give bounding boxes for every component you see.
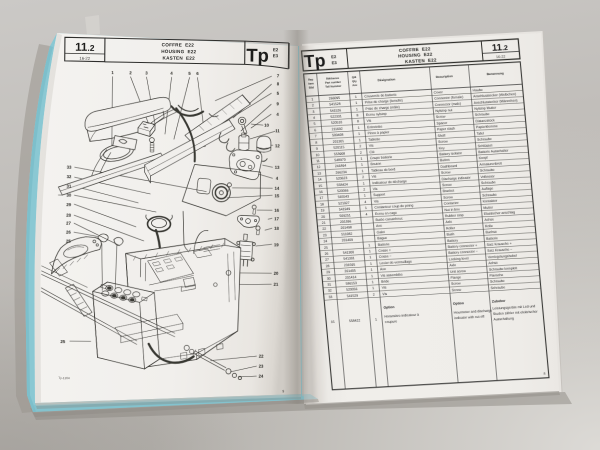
svg-text:Axle: Axle	[445, 220, 452, 224]
svg-text:E3: E3	[273, 53, 279, 58]
svg-text:201409: 201409	[341, 238, 353, 243]
svg-text:31: 31	[66, 184, 71, 189]
svg-text:Screw: Screw	[438, 139, 448, 144]
svg-text:23: 23	[259, 364, 264, 369]
svg-text:520066: 520066	[337, 188, 349, 193]
svg-text:15: 15	[274, 193, 279, 198]
svg-text:18: 18	[320, 202, 324, 206]
svg-text:Vis: Vis	[373, 187, 378, 191]
svg-text:522331: 522331	[330, 114, 342, 119]
svg-text:Clé: Clé	[369, 150, 375, 154]
svg-text:25: 25	[60, 339, 65, 344]
svg-text:29: 29	[326, 270, 330, 274]
svg-text:Screw: Screw	[452, 288, 462, 293]
svg-text:13: 13	[317, 171, 321, 175]
svg-text:Bracket: Bracket	[443, 189, 455, 194]
svg-text:Bush: Bush	[446, 232, 454, 236]
svg-text:KASTEN E22: KASTEN E22	[163, 56, 196, 61]
svg-text:Zubehor: Zubehor	[492, 299, 507, 304]
svg-text:11: 11	[316, 159, 320, 163]
svg-text:201414: 201414	[345, 275, 357, 280]
svg-text:Ty-1104: Ty-1104	[58, 376, 70, 380]
svg-text:16-22: 16-22	[79, 56, 90, 61]
svg-text:Schraube: Schraube	[480, 168, 495, 173]
svg-text:520056: 520056	[346, 287, 358, 292]
svg-text:Shelf: Shelf	[437, 133, 445, 137]
svg-text:21: 21	[273, 282, 278, 287]
svg-text:261405: 261405	[344, 269, 356, 274]
svg-text:16: 16	[319, 190, 323, 194]
svg-text:Vis: Vis	[366, 119, 371, 123]
svg-text:Battery: Battery	[447, 238, 458, 243]
svg-text:19: 19	[274, 242, 279, 247]
svg-text:Bild: Bild	[309, 86, 315, 89]
svg-text:12: 12	[317, 165, 321, 169]
svg-text:COFFRE E22: COFFRE E22	[162, 42, 195, 47]
svg-text:541529: 541529	[347, 294, 359, 299]
svg-text:Option: Option	[383, 305, 394, 310]
svg-text:509251: 509251	[339, 213, 351, 218]
svg-text:Schraube: Schraube	[475, 112, 490, 117]
svg-text:Option: Option	[453, 301, 464, 306]
svg-text:Batterie: Batterie	[486, 236, 498, 241]
svg-text:14: 14	[318, 178, 322, 182]
svg-text:28: 28	[66, 213, 71, 218]
svg-text:22: 22	[259, 354, 264, 359]
svg-text:Vollmeter: Vollmeter	[480, 174, 495, 179]
svg-text:Achse: Achse	[488, 261, 498, 266]
svg-text:Qty: Qty	[352, 80, 357, 83]
svg-text:Knopf: Knopf	[479, 156, 488, 160]
svg-text:Roller: Roller	[446, 226, 456, 231]
svg-text:558422: 558422	[349, 319, 361, 324]
svg-text:Vis: Vis	[369, 144, 374, 148]
svg-text:548970: 548970	[334, 158, 346, 163]
svg-text:Qté: Qté	[352, 76, 357, 79]
svg-text:Axle: Axle	[449, 263, 456, 267]
svg-text:Cosse −: Cosse −	[379, 254, 392, 259]
svg-text:33: 33	[67, 165, 72, 170]
svg-text:Bouton: Bouton	[370, 162, 381, 167]
svg-text:16-22: 16-22	[496, 55, 506, 59]
svg-text:586153: 586153	[345, 281, 357, 286]
svg-text:231595: 231595	[344, 263, 356, 268]
svg-text:13: 13	[275, 165, 280, 170]
svg-text:15: 15	[318, 184, 322, 188]
svg-text:520623: 520623	[336, 176, 348, 181]
svg-text:Cosse +: Cosse +	[378, 248, 391, 253]
svg-text:32: 32	[328, 289, 332, 293]
svg-text:E2: E2	[273, 47, 279, 52]
svg-text:22: 22	[322, 227, 326, 231]
svg-text:Key: Key	[439, 146, 446, 150]
svg-text:Vis: Vis	[371, 175, 376, 179]
svg-text:565543: 565543	[338, 195, 350, 200]
svg-text:15: 15	[331, 320, 335, 324]
svg-text:11.2: 11.2	[75, 42, 95, 54]
svg-text:Support: Support	[373, 193, 385, 198]
svg-text:33: 33	[328, 295, 332, 299]
svg-text:201396: 201396	[340, 219, 352, 224]
svg-text:201301: 201301	[332, 139, 344, 144]
svg-text:Anz: Anz	[352, 84, 358, 87]
svg-text:520510: 520510	[331, 121, 343, 126]
svg-text:29: 29	[66, 202, 71, 207]
svg-text:266234: 266234	[335, 170, 347, 175]
svg-text:21: 21	[322, 221, 326, 225]
svg-text:20: 20	[321, 215, 325, 219]
svg-text:Tafel: Tafel	[476, 131, 484, 135]
svg-text:25: 25	[66, 239, 71, 244]
svg-text:Schlüssel: Schlüssel	[478, 143, 493, 148]
svg-text:31: 31	[327, 283, 331, 287]
svg-text:Button: Button	[440, 158, 450, 163]
svg-text:25: 25	[324, 246, 328, 250]
svg-text:Haube: Haube	[472, 88, 482, 93]
svg-text:Achse: Achse	[484, 218, 494, 223]
svg-text:24: 24	[259, 374, 264, 379]
svg-text:Buchse: Buchse	[485, 230, 497, 235]
svg-text:30: 30	[327, 276, 331, 280]
svg-text:541301: 541301	[343, 256, 355, 261]
svg-text:27: 27	[66, 221, 71, 226]
svg-text:Mutter: Mutter	[483, 205, 494, 210]
svg-text:18: 18	[274, 226, 279, 231]
svg-text:Rolle: Rolle	[485, 224, 493, 228]
svg-text:Schraube: Schraube	[490, 285, 505, 290]
svg-text:Schraube: Schraube	[481, 180, 496, 185]
svg-text:266095: 266095	[329, 96, 341, 101]
svg-text:Tablette: Tablette	[368, 137, 380, 142]
svg-text:541528: 541528	[329, 102, 341, 107]
svg-text:24: 24	[323, 239, 327, 243]
svg-text:Screw: Screw	[443, 195, 453, 200]
svg-text:Screw: Screw	[436, 115, 446, 120]
svg-text:11: 11	[275, 128, 280, 133]
svg-text:10: 10	[315, 153, 319, 157]
svg-text:Flansche: Flansche	[489, 273, 503, 278]
svg-text:Cover: Cover	[434, 90, 444, 95]
svg-text:201498: 201498	[340, 226, 352, 231]
svg-text:Entretoise: Entretoise	[367, 125, 383, 130]
svg-text:10: 10	[264, 123, 269, 128]
svg-text:Vis: Vis	[382, 286, 387, 290]
svg-text:541300: 541300	[343, 250, 355, 255]
svg-text:Bride: Bride	[381, 279, 389, 283]
svg-text:Screw: Screw	[442, 183, 452, 188]
svg-text:17: 17	[319, 196, 323, 200]
svg-text:Screw: Screw	[451, 282, 461, 287]
svg-text:558424: 558424	[336, 182, 348, 187]
svg-text:27: 27	[325, 258, 329, 262]
svg-text:509408: 509408	[332, 133, 344, 138]
svg-text:Vis: Vis	[382, 292, 387, 296]
svg-text:541949: 541949	[339, 207, 351, 212]
svg-text:Batterie: Batterie	[378, 242, 390, 247]
svg-text:HOUSING E22: HOUSING E22	[161, 49, 196, 54]
svg-text:Schraube: Schraube	[490, 279, 505, 284]
svg-text:Schraube: Schraube	[477, 137, 492, 142]
svg-text:511082: 511082	[341, 232, 353, 237]
svg-text:Tp: Tp	[246, 44, 269, 65]
svg-text:Galet: Galet	[377, 230, 386, 234]
svg-text:Schraube: Schraube	[482, 193, 497, 198]
svg-text:17: 17	[274, 216, 279, 221]
svg-text:520115: 520115	[333, 145, 345, 150]
svg-text:Bague: Bague	[377, 236, 387, 241]
svg-text:Axe: Axe	[376, 224, 382, 228]
svg-text:541526: 541526	[330, 108, 342, 113]
svg-text:Vis: Vis	[374, 199, 379, 203]
svg-text:28: 28	[326, 264, 330, 268]
svg-text:Spacer: Spacer	[436, 121, 448, 126]
svg-text:Axe: Axe	[380, 267, 386, 271]
svg-text:16: 16	[274, 208, 279, 213]
svg-text:coupure: coupure	[385, 320, 398, 325]
svg-text:20: 20	[274, 271, 279, 276]
svg-text:211692: 211692	[331, 127, 343, 132]
svg-text:30: 30	[66, 193, 71, 198]
svg-text:Auflage: Auflage	[481, 187, 493, 192]
svg-text:12: 12	[275, 143, 280, 148]
svg-text:32: 32	[67, 174, 72, 179]
svg-text:241894: 241894	[335, 164, 347, 169]
svg-text:26: 26	[66, 230, 71, 235]
svg-text:553908: 553908	[334, 151, 346, 156]
svg-text:23: 23	[323, 233, 327, 237]
svg-text:19: 19	[320, 208, 324, 212]
svg-text:Flange: Flange	[450, 275, 461, 280]
svg-text:Screw: Screw	[441, 170, 451, 175]
svg-text:521927: 521927	[338, 201, 350, 206]
svg-text:26: 26	[324, 252, 328, 256]
svg-text:Item: Item	[308, 82, 314, 85]
svg-text:14: 14	[274, 186, 279, 191]
